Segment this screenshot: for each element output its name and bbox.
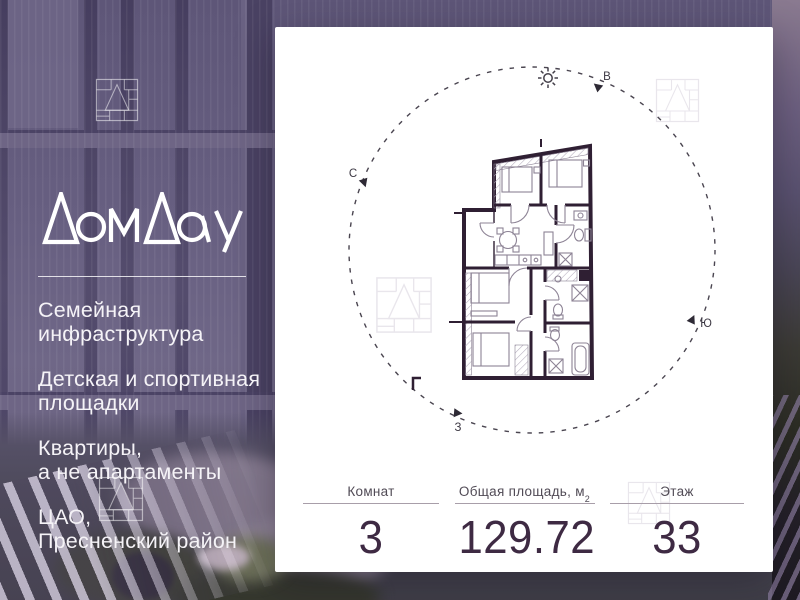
compass-west-label: З — [455, 422, 462, 434]
ad-banner: ДомДау Семейная инфраструктура Детская и… — [0, 0, 800, 600]
compass-arrow-icon — [454, 408, 463, 418]
divider-line — [38, 276, 246, 277]
apartment-card: В Ю З С — [275, 27, 773, 572]
compass-north-label: С — [349, 168, 357, 180]
promo-text-block: ДомДау Семейная инфраструктура Детская и… — [38, 192, 270, 553]
compass-arrow-icon — [591, 80, 603, 92]
feature-item: Детская и спортивная площадки — [38, 368, 270, 415]
compass-arrow-icon — [359, 178, 370, 189]
compass-east-label: В — [603, 71, 611, 83]
apartment-plan — [413, 139, 592, 390]
rooms-value: 3 — [306, 510, 435, 564]
compass-arrow-icon — [687, 313, 699, 325]
sun-icon — [538, 68, 558, 88]
compass-south-label: Ю — [700, 318, 712, 330]
feature-item: Семейная инфраструктура — [38, 299, 270, 346]
feature-item: Квартиры, а не апартаменты — [38, 437, 270, 484]
stat-rooms: Комнат 3 — [303, 482, 439, 564]
domdau-logo — [42, 192, 247, 254]
area-value: 129.72 — [458, 510, 591, 564]
floor-value: 33 — [613, 510, 740, 564]
stat-area: Общая площадь, м2 129.72 — [455, 482, 595, 564]
stat-floor: Этаж 33 — [610, 482, 744, 564]
feature-item: ЦАО, Пресненский район — [38, 506, 270, 553]
apartment-stats: Комнат 3 Общая площадь, м2 129.72 Этаж 3… — [303, 482, 744, 564]
